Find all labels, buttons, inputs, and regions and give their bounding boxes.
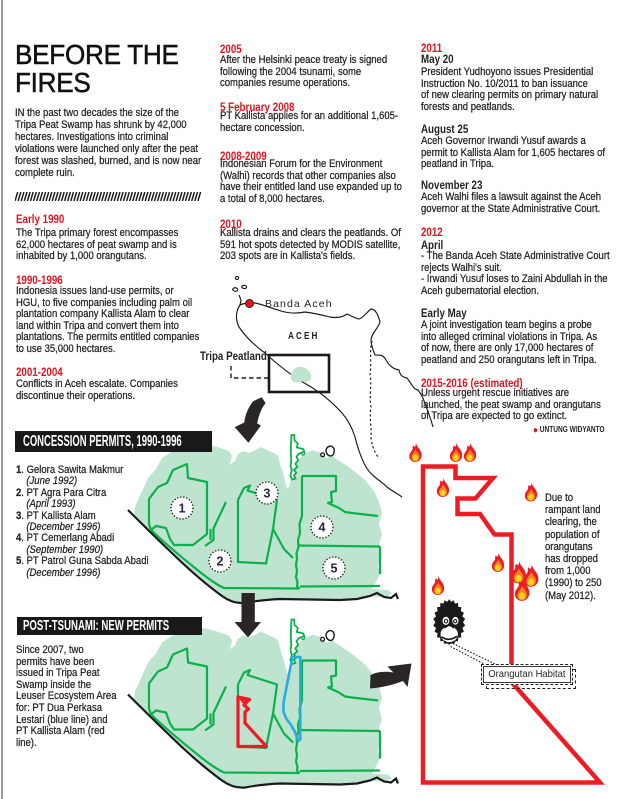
svg-text:3: 3 — [264, 487, 271, 501]
svg-text:4: 4 — [319, 521, 326, 535]
svg-text:1: 1 — [179, 502, 186, 516]
svg-text:2: 2 — [217, 555, 224, 569]
svg-text:5: 5 — [331, 562, 338, 576]
